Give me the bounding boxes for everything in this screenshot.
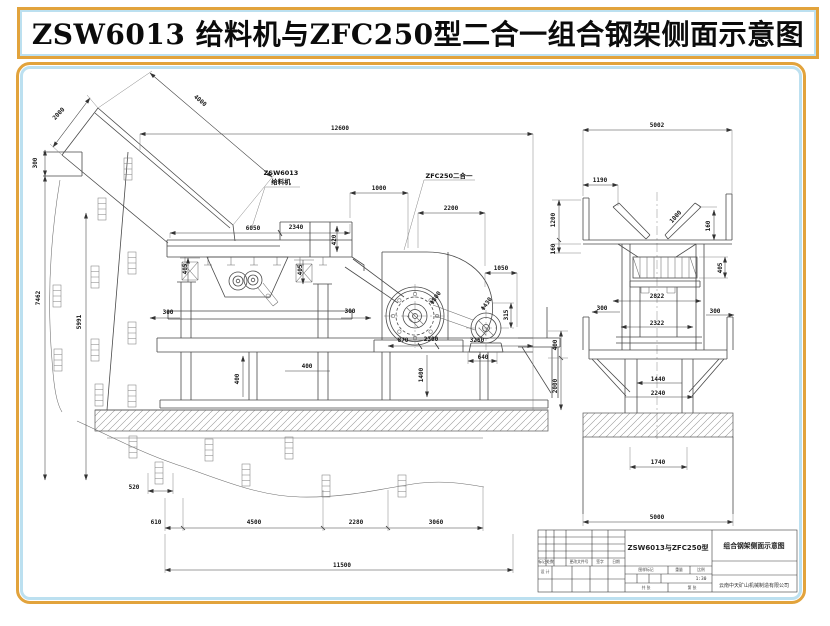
crusher-name-label: ZFC250二合一 [426, 171, 473, 180]
dim-label: 160 [550, 243, 557, 254]
col-sign: 签字 [596, 559, 604, 564]
title-block-drawing-title: 组合钢架侧面示意图 [723, 541, 784, 550]
dim-label: 300 [710, 308, 721, 315]
dim-label: 400 [234, 373, 241, 384]
col-doc: 更改文件号 [570, 559, 589, 564]
dim-label: 1440 [651, 376, 666, 383]
dim-label: 315 [503, 309, 510, 320]
dim-label: 12600 [331, 125, 349, 132]
engineering-drawing: ZSW6013 给料机 ZFC250二合一 [0, 0, 830, 626]
row-design: 设 计 [541, 569, 550, 574]
cell-weight: 重量 [675, 567, 683, 572]
front-frame [583, 194, 733, 514]
dim-label: 2300 [424, 336, 439, 343]
dim-label: 1400 [418, 367, 425, 382]
dim-label: 420 [331, 234, 338, 245]
dim-label: 4000 [192, 94, 208, 109]
dim-label: 1200 [550, 212, 557, 227]
title-block-scale-value: 1:30 [696, 576, 707, 582]
dim-label: 2240 [651, 390, 666, 397]
dim-label: 5000 [650, 514, 665, 521]
dim-label: 3060 [429, 519, 444, 526]
dim-label: 405 [297, 264, 304, 275]
dim-label: 300 [597, 305, 608, 312]
cell-scale: 比例 [697, 567, 705, 572]
feed-chute [62, 108, 235, 243]
col-count: 处数 [546, 559, 554, 564]
dim-label: 3250 [470, 337, 485, 344]
dim-label: 1000 [668, 209, 683, 225]
cell-sheets-total: 共 张 [642, 585, 651, 590]
dim-label: 2822 [650, 293, 665, 300]
dim-label: 2322 [650, 320, 665, 327]
side-view: ZSW6013 给料机 ZFC250二合一 [43, 71, 568, 573]
dim-label: 405 [182, 263, 189, 274]
dim-label: 1740 [651, 459, 666, 466]
dim-label: 1050 [494, 265, 509, 272]
dim-label: 520 [129, 484, 140, 491]
dim-label: 4500 [247, 519, 262, 526]
dim-label: 2000 [51, 106, 66, 122]
dim-label: 11500 [333, 562, 351, 569]
dim-label: 1190 [593, 177, 608, 184]
dim-label: 2200 [444, 205, 459, 212]
dim-label: 610 [151, 519, 162, 526]
retaining-wall [43, 152, 548, 497]
dim-label: 2000 [552, 378, 559, 393]
dim-label: 2340 [289, 224, 304, 231]
chute-dimensions [50, 71, 274, 225]
dim-label: 1000 [372, 185, 387, 192]
dim-label: 400 [302, 363, 313, 370]
dim-label: 6050 [246, 225, 261, 232]
col-mark: 标记 [538, 559, 546, 564]
cell-sheet-no: 第 张 [688, 585, 697, 590]
dim-label: 870 [398, 337, 409, 344]
dim-label: 2280 [349, 519, 364, 526]
brick-wall-pattern [53, 158, 406, 497]
title-block-company: 云南中天矿山机械制造有限公司 [719, 582, 789, 589]
title-block: ZSW6013与ZFC250型 组合钢架侧面示意图 云南中天矿山机械制造有限公司… [538, 530, 797, 592]
dim-label: 640 [478, 354, 489, 361]
foundation-hatch [583, 413, 733, 437]
dim-label: 300 [163, 309, 174, 316]
dim-label: 160 [705, 220, 712, 231]
dim-label: 400 [552, 339, 559, 350]
dim-label: 405 [717, 262, 724, 273]
dim-label: 5991 [76, 314, 83, 329]
feeder-name-label: 给料机 [271, 177, 291, 186]
title-block-model: ZSW6013与ZFC250型 [628, 543, 709, 552]
dim-label: 300 [345, 308, 356, 315]
dim-label: 5002 [650, 122, 665, 129]
dim-label: 7462 [35, 290, 42, 305]
cell-stamp: 图样标记 [638, 567, 653, 572]
col-date: 日期 [612, 559, 620, 564]
dim-label: 300 [32, 157, 39, 168]
side-view-dimensions [45, 134, 568, 573]
vibrator-exciter [207, 257, 288, 306]
front-view [552, 130, 734, 526]
feeder-model-label: ZSW6013 [264, 169, 299, 177]
front-view-dimensions [552, 130, 734, 526]
ground-hatch [95, 410, 548, 431]
